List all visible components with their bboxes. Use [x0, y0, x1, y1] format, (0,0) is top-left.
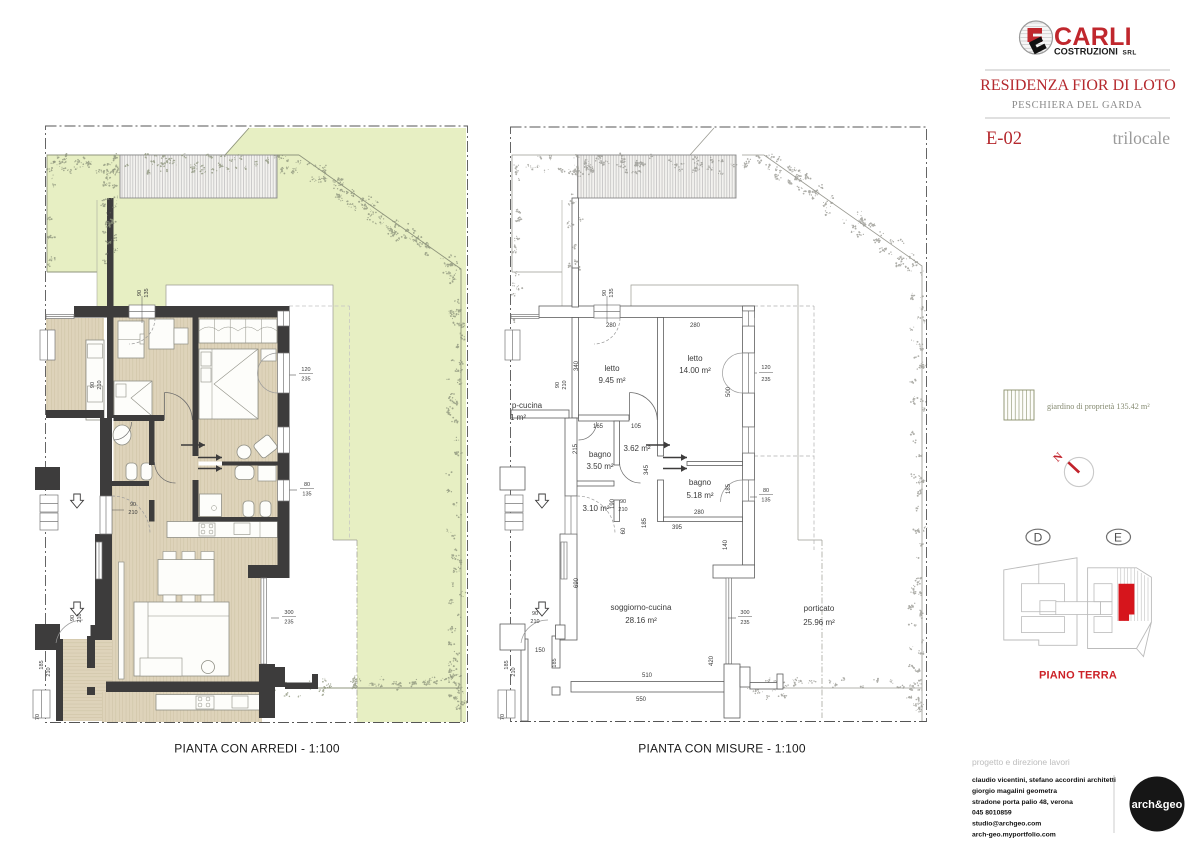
svg-text:345: 345 [644, 464, 650, 475]
svg-text:80: 80 [763, 488, 769, 494]
svg-text:300: 300 [284, 610, 293, 616]
svg-text:210: 210 [530, 619, 539, 625]
svg-text:235: 235 [761, 377, 770, 383]
svg-text:stradone porta palio 48, veron: stradone porta palio 48, verona [972, 799, 1073, 806]
svg-text:210: 210 [46, 667, 52, 676]
svg-text:210: 210 [128, 510, 137, 516]
svg-text:300: 300 [740, 610, 749, 616]
svg-text:235: 235 [301, 377, 310, 383]
svg-text:PESCHIERA DEL GARDA: PESCHIERA DEL GARDA [1012, 100, 1143, 111]
svg-text:letto: letto [687, 354, 703, 363]
svg-text:80: 80 [304, 482, 310, 488]
svg-text:235: 235 [284, 620, 293, 626]
svg-text:giardino di proprietà 135.42 m: giardino di proprietà 135.42 m² [1047, 402, 1150, 411]
svg-text:trilocale: trilocale [1113, 128, 1171, 148]
svg-text:105: 105 [631, 424, 642, 430]
svg-text:claudio vicentini, stefano acc: claudio vicentini, stefano accordini arc… [972, 777, 1116, 784]
svg-text:185: 185 [552, 658, 558, 667]
svg-text:210: 210 [618, 507, 627, 513]
svg-text:185: 185 [726, 483, 732, 494]
svg-text:690: 690 [574, 577, 580, 588]
svg-text:arch&geo: arch&geo [1132, 799, 1183, 811]
svg-text:340: 340 [574, 360, 580, 371]
svg-text:70: 70 [35, 714, 41, 720]
svg-text:90: 90 [532, 611, 538, 617]
svg-text:RESIDENZA FIOR DI LOTO: RESIDENZA FIOR DI LOTO [980, 77, 1176, 94]
svg-text:235: 235 [740, 620, 749, 626]
svg-text:25.96 m²: 25.96 m² [803, 618, 835, 627]
svg-text:PIANTA CON MISURE - 1:100: PIANTA CON MISURE - 1:100 [638, 742, 806, 756]
svg-text:70: 70 [500, 714, 506, 720]
svg-text:giorgio magalini geometra: giorgio magalini geometra [972, 788, 1057, 795]
svg-text:p-cucina: p-cucina [512, 401, 543, 410]
svg-text:185: 185 [642, 517, 648, 528]
svg-text:135: 135 [144, 288, 150, 297]
svg-text:165: 165 [593, 424, 604, 430]
svg-text:120: 120 [761, 365, 770, 371]
svg-text:9.45 m²: 9.45 m² [598, 376, 625, 385]
svg-text:135: 135 [302, 492, 311, 498]
svg-text:COSTRUZIONI: COSTRUZIONI [1054, 47, 1118, 57]
svg-text:280: 280 [606, 323, 617, 329]
svg-text:90: 90 [620, 499, 626, 505]
svg-text:PIANTA CON ARREDI - 1:100: PIANTA CON ARREDI - 1:100 [174, 742, 340, 756]
svg-text:arch-geo.myportfolio.com: arch-geo.myportfolio.com [972, 832, 1056, 839]
svg-text:280: 280 [694, 510, 705, 516]
svg-text:185: 185 [504, 660, 510, 669]
svg-text:3.50 m²: 3.50 m² [586, 462, 613, 471]
svg-text:215: 215 [573, 443, 579, 454]
svg-text:420: 420 [709, 655, 715, 666]
svg-text:185: 185 [87, 658, 93, 667]
svg-text:140: 140 [723, 539, 729, 550]
svg-text:1 m²: 1 m² [510, 413, 526, 422]
svg-text:190: 190 [610, 498, 616, 509]
svg-text:120: 120 [301, 367, 310, 373]
svg-text:90: 90 [555, 382, 561, 388]
svg-text:soggiorno-cucina: soggiorno-cucina [611, 603, 672, 612]
svg-text:PIANO TERRA: PIANO TERRA [1039, 670, 1117, 682]
svg-text:135: 135 [609, 288, 615, 297]
svg-text:90: 90 [137, 290, 143, 296]
svg-text:135: 135 [761, 498, 770, 504]
svg-text:210: 210 [562, 380, 568, 389]
svg-text:90: 90 [70, 615, 76, 621]
svg-text:D: D [1034, 531, 1043, 545]
svg-text:210: 210 [97, 380, 103, 389]
svg-text:3.10 m²: 3.10 m² [582, 504, 609, 513]
svg-text:510: 510 [642, 673, 653, 679]
svg-text:550: 550 [636, 697, 647, 703]
svg-text:395: 395 [672, 525, 683, 531]
svg-text:045 8010859: 045 8010859 [972, 810, 1012, 817]
svg-text:210: 210 [77, 613, 83, 622]
svg-text:280: 280 [690, 323, 701, 329]
svg-text:500: 500 [726, 386, 732, 397]
svg-text:5.18 m²: 5.18 m² [686, 491, 713, 500]
svg-text:bagno: bagno [689, 478, 712, 487]
svg-text:185: 185 [39, 660, 45, 669]
svg-text:bagno: bagno [589, 450, 612, 459]
svg-text:E-02: E-02 [986, 129, 1022, 149]
svg-text:E: E [1114, 531, 1122, 545]
svg-text:90: 90 [130, 502, 136, 508]
svg-text:90: 90 [90, 382, 96, 388]
svg-text:28.16 m²: 28.16 m² [625, 616, 657, 625]
svg-text:SRL: SRL [1123, 50, 1137, 57]
svg-text:studio@archgeo.com: studio@archgeo.com [972, 821, 1041, 828]
svg-text:letto: letto [604, 364, 620, 373]
svg-text:14.00 m²: 14.00 m² [679, 366, 711, 375]
svg-text:210: 210 [511, 667, 517, 676]
svg-text:progetto e direzione lavori: progetto e direzione lavori [972, 757, 1070, 767]
svg-text:150: 150 [535, 648, 546, 654]
svg-text:60: 60 [621, 527, 627, 534]
svg-text:90: 90 [602, 290, 608, 296]
svg-text:3.62 m²: 3.62 m² [623, 444, 650, 453]
svg-text:porticato: porticato [804, 604, 835, 613]
